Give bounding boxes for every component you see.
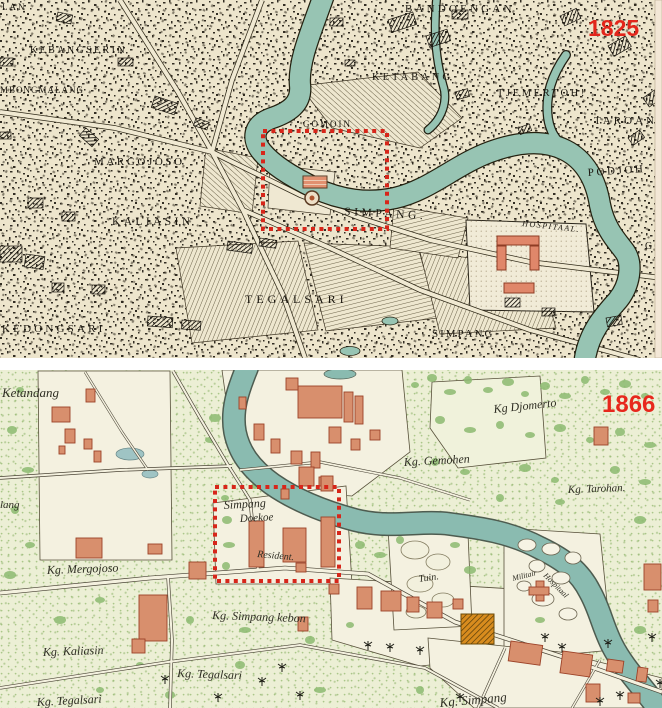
year-label-1866: 1866 [602, 391, 655, 418]
map-label-margojoso: MARGOJOSO [94, 156, 185, 168]
map-label-kg-tegalsari: Kg. Tegalsari [35, 692, 102, 708]
highlighted-orange-building [461, 614, 494, 644]
map-label-ketandang: Ketandang [1, 385, 60, 400]
map-label-lan: LAN [2, 2, 27, 12]
map1825-right-margin [655, 0, 662, 358]
year-label-1825: 1825 [588, 15, 639, 41]
map-comparison-figure: LANBANDOENGANKEBANGSERINKETABANGTJEMERTO… [0, 0, 662, 708]
map-label-tjemertoh-: TJEMERTOH! [497, 88, 587, 99]
map-label-kebangserin: KEBANGSERIN [30, 45, 127, 56]
map-label-gomoin: GOMOIN [303, 119, 352, 129]
historic-map-1866: KetandanglangKg DjomertoKg. GemohenKg. T… [0, 370, 662, 708]
map-label-simpang: Simpang [223, 496, 266, 512]
map-label-kg-tegalsari: Kg. Tegalsari [176, 666, 242, 682]
map-label-simpang: SIMPANG [432, 328, 495, 340]
map-label-kg-kaliasin: Kg. Kaliasin [42, 643, 104, 659]
map-label-tegalsari: TEGALSARI [245, 292, 348, 306]
map-label-kedongsari: KEDONGSARI [2, 323, 106, 335]
map-label-kg-tarohan-: Kg. Tarohan. [567, 482, 626, 496]
map-label-doekoe: Doekoe [239, 511, 274, 525]
map-label-bandoengan: BANDOENGAN [405, 3, 515, 15]
map-label-taroan: TAROAN [594, 115, 657, 127]
historic-map-1825: LANBANDOENGANKEBANGSERINKETABANGTJEMERTO… [0, 0, 662, 358]
map-label-lang: lang [0, 499, 20, 511]
map-label-mbongmalang: MBONGMALANG [0, 85, 84, 95]
map-label-kg-mergojoso: Kg. Mergojoso [46, 561, 119, 578]
map-label-kaliasin: KALIASIN [112, 216, 194, 228]
panel-divider [0, 358, 662, 370]
map-label-ketabang: KETABANG [372, 72, 453, 83]
